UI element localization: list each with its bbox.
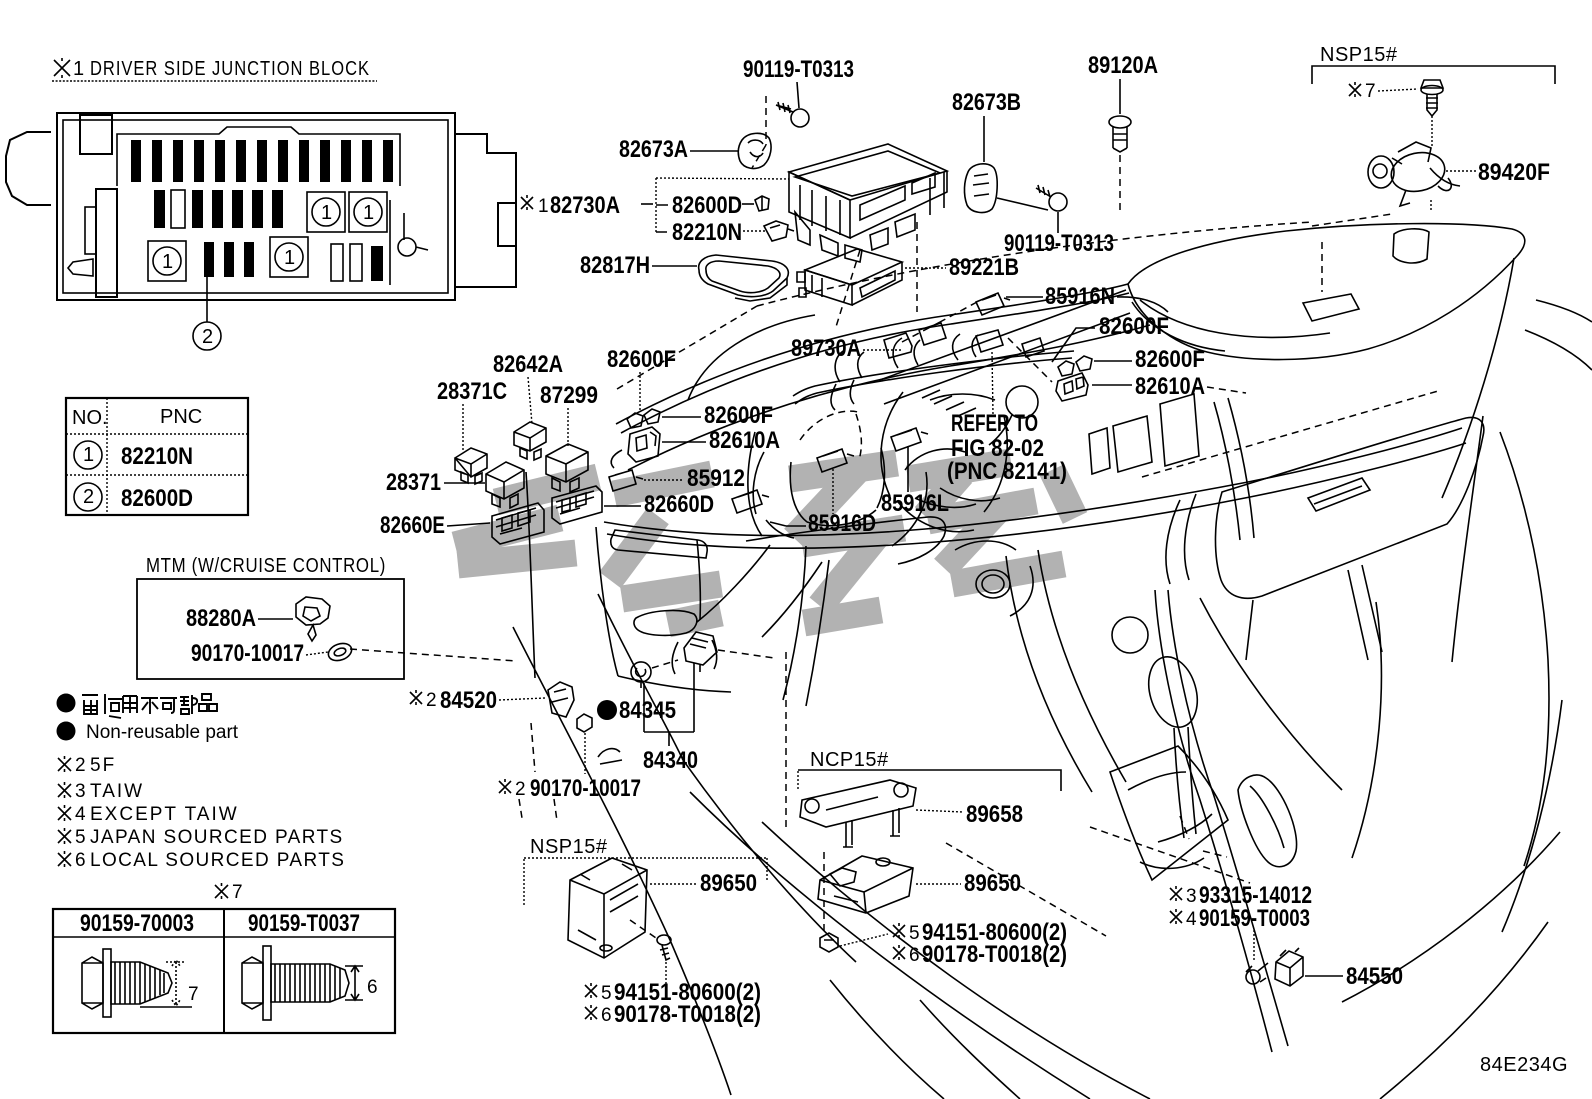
svg-text:7: 7: [1365, 81, 1376, 102]
svg-text:90178-T0018(2): 90178-T0018(2): [922, 941, 1067, 968]
svg-text:90170-10017: 90170-10017: [191, 640, 304, 667]
svg-text:5F: 5F: [90, 755, 116, 776]
svg-text:90178-T0018(2): 90178-T0018(2): [614, 1001, 761, 1028]
svg-text:3: 3: [1186, 886, 1197, 907]
svg-text:82730A: 82730A: [550, 192, 620, 219]
svg-text:90119-T0313: 90119-T0313: [1004, 230, 1114, 257]
svg-text:82610A: 82610A: [709, 427, 780, 454]
svg-text:82642A: 82642A: [493, 351, 563, 378]
svg-text:NCP15#: NCP15#: [810, 749, 889, 771]
svg-text:4: 4: [75, 804, 86, 825]
svg-text:89221B: 89221B: [949, 254, 1019, 281]
svg-text:3: 3: [75, 781, 86, 802]
svg-text:LOCAL SOURCED PARTS: LOCAL SOURCED PARTS: [90, 850, 345, 871]
svg-text:6: 6: [909, 945, 920, 966]
svg-text:90170-10017: 90170-10017: [530, 775, 641, 802]
svg-text:89420F: 89420F: [1478, 159, 1550, 186]
svg-text:MTM (W/CRUISE CONTROL): MTM (W/CRUISE CONTROL): [146, 555, 386, 577]
svg-text:6: 6: [75, 850, 86, 871]
svg-text:Non-reusable part: Non-reusable part: [86, 722, 239, 743]
svg-text:1: 1: [284, 247, 295, 269]
svg-text:85916L: 85916L: [881, 490, 949, 517]
svg-text:82660D: 82660D: [644, 491, 714, 518]
svg-text:5: 5: [909, 923, 920, 944]
svg-text:28371C: 28371C: [437, 378, 507, 405]
svg-text:1: 1: [162, 251, 173, 273]
svg-text:7: 7: [188, 984, 199, 1005]
svg-text:(PNC 82141): (PNC 82141): [947, 458, 1067, 485]
svg-text:85916N: 85916N: [1045, 283, 1115, 310]
svg-text:84340: 84340: [643, 747, 698, 774]
svg-text:84E234G: 84E234G: [1480, 1054, 1568, 1076]
svg-text:1: 1: [83, 444, 94, 466]
svg-text:1: 1: [363, 202, 374, 224]
svg-text:82600F: 82600F: [1135, 346, 1205, 373]
svg-text:2: 2: [83, 486, 94, 508]
svg-text:82610A: 82610A: [1135, 373, 1205, 400]
svg-text:82600F: 82600F: [607, 346, 676, 373]
svg-text:89650: 89650: [700, 870, 757, 897]
svg-text:89650: 89650: [964, 870, 1021, 897]
svg-text:82210N: 82210N: [672, 219, 742, 246]
svg-text:90159-T0003: 90159-T0003: [1199, 905, 1310, 932]
svg-text:6: 6: [601, 1005, 612, 1026]
svg-text:1: 1: [538, 196, 549, 217]
svg-text:1: 1: [321, 202, 332, 224]
svg-text:82660E: 82660E: [380, 512, 445, 539]
svg-text:88280A: 88280A: [186, 605, 256, 632]
svg-text:4: 4: [1186, 909, 1197, 930]
svg-text:87299: 87299: [540, 382, 598, 409]
svg-text:89730A: 89730A: [791, 335, 861, 362]
svg-text:90159-T0037: 90159-T0037: [248, 910, 360, 937]
svg-text:2: 2: [202, 326, 213, 348]
svg-text:2: 2: [75, 755, 86, 776]
svg-text:82673B: 82673B: [952, 89, 1021, 116]
svg-text:82600D: 82600D: [672, 192, 742, 219]
svg-text:82210N: 82210N: [121, 443, 193, 470]
svg-text:TAIW: TAIW: [90, 781, 144, 802]
svg-text:84520: 84520: [440, 687, 497, 714]
svg-text:90159-70003: 90159-70003: [80, 910, 194, 937]
svg-text:REFER TO: REFER TO: [951, 410, 1038, 437]
svg-text:85912: 85912: [687, 465, 745, 492]
svg-text:89120A: 89120A: [1088, 52, 1158, 79]
svg-text:89658: 89658: [966, 801, 1023, 828]
svg-text:28371: 28371: [386, 469, 441, 496]
svg-text:84345: 84345: [619, 697, 676, 724]
svg-text:90119-T0313: 90119-T0313: [743, 56, 854, 83]
svg-text:82600F: 82600F: [704, 402, 773, 429]
svg-text:82600F: 82600F: [1099, 313, 1169, 340]
svg-text:84550: 84550: [1346, 963, 1403, 990]
svg-text:1: 1: [73, 58, 84, 80]
svg-text:NO.: NO.: [72, 407, 108, 429]
svg-text:NSP15#: NSP15#: [1320, 44, 1398, 66]
svg-text:6: 6: [367, 977, 378, 998]
svg-text:JAPAN SOURCED PARTS: JAPAN SOURCED PARTS: [90, 827, 344, 848]
svg-text:EXCEPT TAIW: EXCEPT TAIW: [90, 804, 239, 825]
svg-text:PNC: PNC: [160, 406, 202, 428]
svg-text:NSP15#: NSP15#: [530, 836, 608, 858]
svg-text:5: 5: [601, 983, 612, 1004]
svg-text:85916D: 85916D: [808, 510, 876, 537]
svg-text:82673A: 82673A: [619, 136, 688, 163]
svg-text:2: 2: [426, 690, 437, 711]
svg-text:82600D: 82600D: [121, 485, 193, 512]
svg-text:DRIVER SIDE JUNCTION BLOCK: DRIVER SIDE JUNCTION BLOCK: [90, 58, 370, 80]
svg-text:7: 7: [232, 882, 243, 903]
svg-text:2: 2: [515, 779, 526, 800]
svg-text:82817H: 82817H: [580, 252, 650, 279]
svg-text:5: 5: [75, 827, 86, 848]
